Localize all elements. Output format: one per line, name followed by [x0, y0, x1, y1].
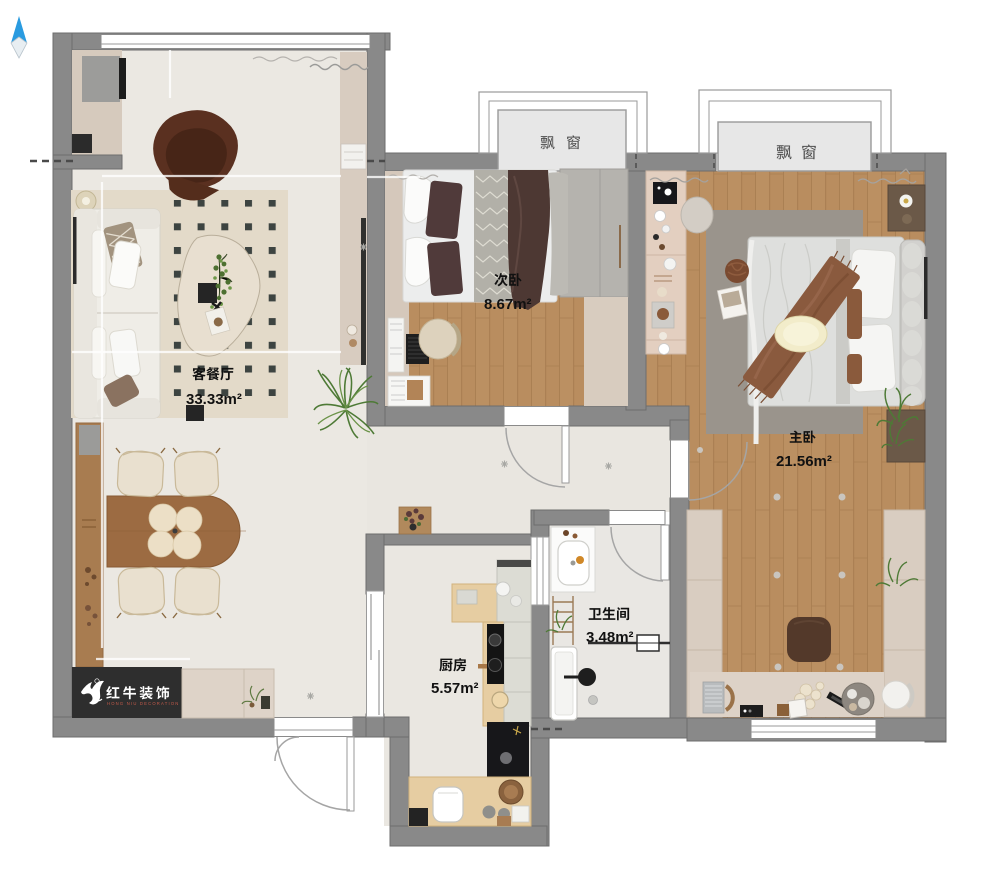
- svg-text:21.56m²: 21.56m²: [776, 453, 832, 470]
- svg-text:8.67m²: 8.67m²: [484, 296, 532, 313]
- svg-text:HONG NIU DECORATION: HONG NIU DECORATION: [107, 701, 180, 706]
- svg-text:3.48m²: 3.48m²: [586, 629, 634, 646]
- svg-text:5.57m²: 5.57m²: [431, 680, 479, 697]
- svg-text:33.33m²: 33.33m²: [186, 391, 242, 408]
